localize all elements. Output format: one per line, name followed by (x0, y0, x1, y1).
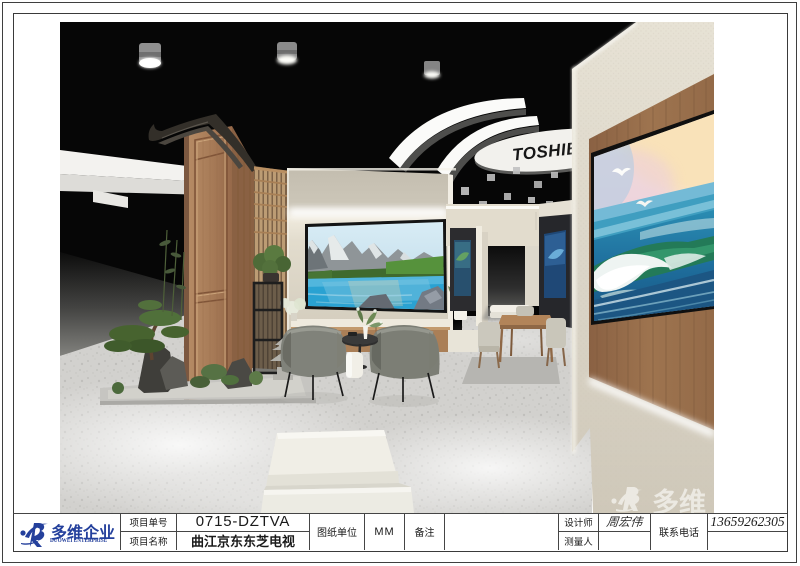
svg-text:多维: 多维 (652, 488, 706, 513)
